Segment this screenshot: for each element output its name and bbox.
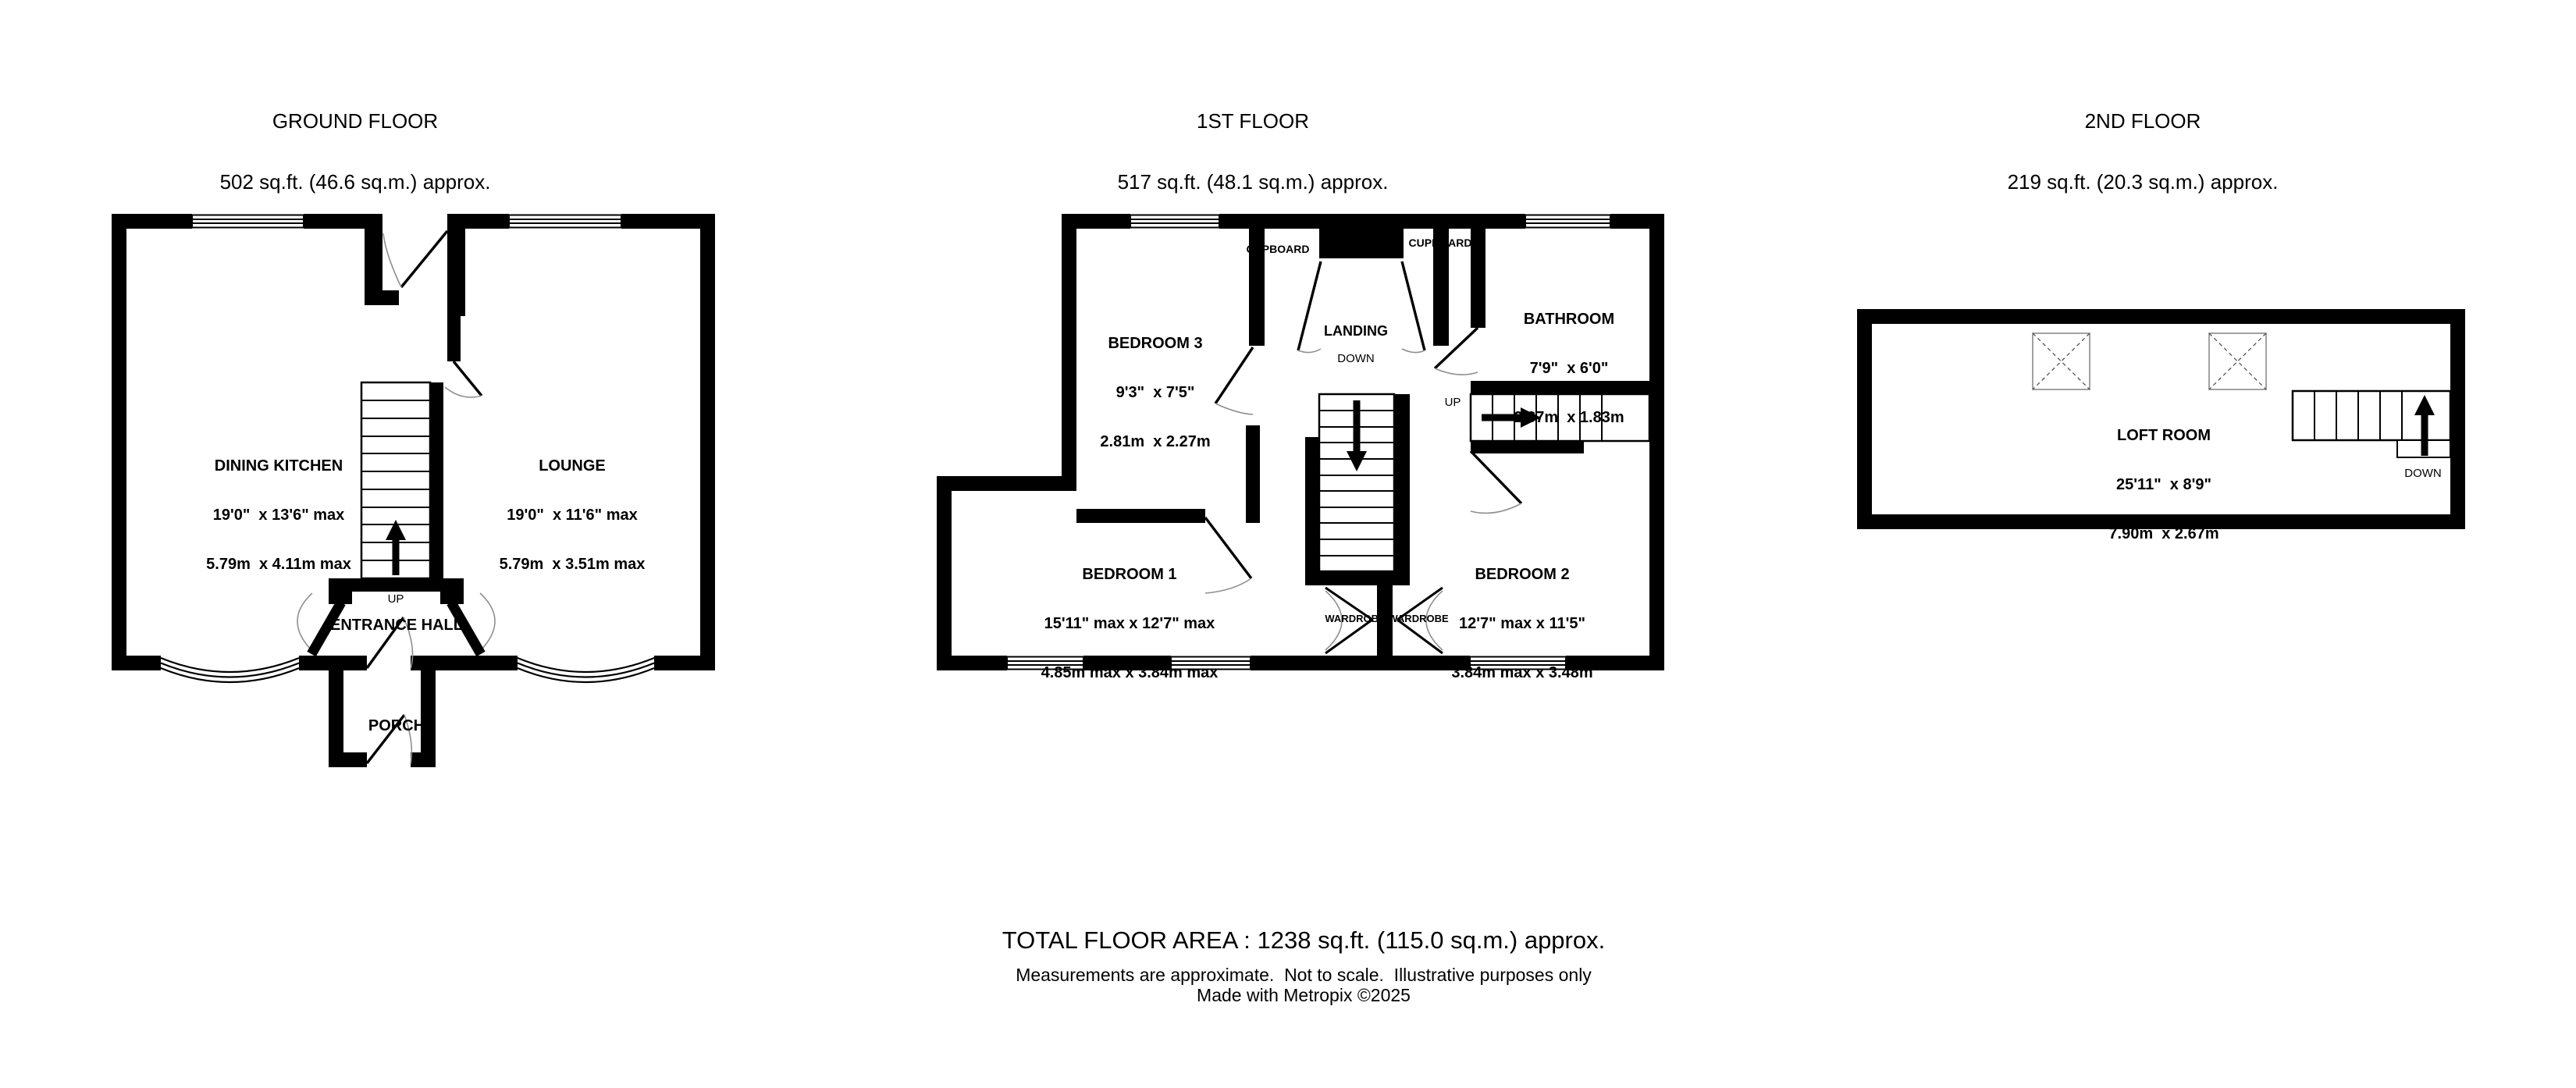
room-label-loft-room: LOFT ROOM 25'11" x 8'9" 7.90m x 2.67m: [2108, 395, 2218, 559]
stairs-down-label-first: DOWN: [1337, 353, 1375, 365]
floor-area: 219 sq.ft. (20.3 sq.m.) approx.: [2008, 172, 2279, 192]
stairs-up-label-ground: UP: [388, 593, 404, 606]
floor-title: GROUND FLOOR: [220, 111, 491, 131]
floorplan-page: { "floors": [ { "title": "GROUND FLOOR",…: [0, 0, 2576, 1088]
wardrobe-label-left: WARDROBE: [1325, 613, 1385, 624]
cupboard-label-right: CUPBOARD: [1409, 237, 1472, 249]
stairs-up-label-first: UP: [1445, 396, 1461, 409]
room-label-bedroom-1: BEDROOM 1 15'11" max x 12'7" max 4.85m m…: [1041, 534, 1219, 698]
ground-floor-windows: [192, 215, 621, 228]
second-floor-stairs: [2293, 391, 2450, 457]
loft-skylights: [2033, 333, 2266, 389]
stairs-down-label-second: DOWN: [2404, 468, 2442, 480]
cupboard-label-left: CUPBOARD: [1247, 244, 1310, 255]
footer-credit: Made with Metropix ©2025: [1197, 986, 1411, 1005]
room-label-lounge: LOUNGE 19'0" x 11'6" max 5.79m x 3.51m m…: [500, 425, 646, 589]
total-floor-area: TOTAL FLOOR AREA : 1238 sq.ft. (115.0 sq…: [1002, 927, 1605, 953]
floor-area: 517 sq.ft. (48.1 sq.m.) approx.: [1118, 172, 1389, 192]
floor-area: 502 sq.ft. (46.6 sq.m.) approx.: [220, 172, 491, 192]
ground-floor-stairs: [361, 382, 430, 578]
room-label-entrance-hall: ENTRANCE HALL: [330, 617, 463, 634]
floor-title: 2ND FLOOR: [2008, 111, 2279, 131]
second-floor-title: 2ND FLOOR 219 sq.ft. (20.3 sq.m.) approx…: [2008, 70, 2279, 212]
ground-floor-bay-windows: [161, 658, 654, 682]
room-label-dining-kitchen: DINING KITCHEN 19'0" x 13'6" max 5.79m x…: [206, 425, 351, 589]
room-label-porch: PORCH: [368, 718, 425, 734]
room-label-landing: LANDING: [1324, 324, 1388, 339]
room-label-bedroom-2: BEDROOM 2 12'7" max x 11'5" 3.84m max x …: [1451, 534, 1592, 698]
room-label-bedroom-3: BEDROOM 3 9'3" x 7'5" 2.81m x 2.27m: [1100, 303, 1210, 467]
first-floor-stairs-down: [1319, 394, 1394, 571]
floor-title: 1ST FLOOR: [1118, 111, 1389, 131]
room-label-bathroom: BATHROOM 7'9" x 6'0" 2.37m x 1.83m: [1514, 279, 1624, 443]
footer-disclaimer: Measurements are approximate. Not to sca…: [1016, 965, 1592, 985]
wardrobe-label-right: WARDROBE: [1388, 613, 1448, 624]
ground-floor-title: GROUND FLOOR 502 sq.ft. (46.6 sq.m.) app…: [220, 70, 491, 212]
first-floor-title: 1ST FLOOR 517 sq.ft. (48.1 sq.m.) approx…: [1118, 70, 1389, 212]
